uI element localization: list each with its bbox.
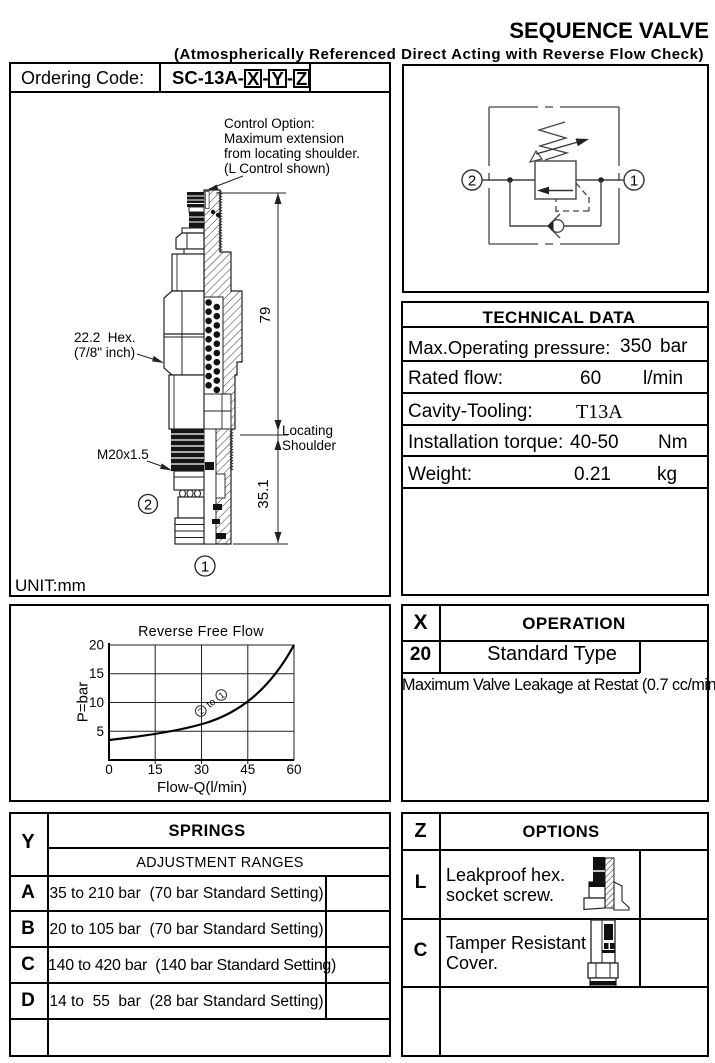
svg-text:2: 2	[144, 498, 152, 514]
svg-text:15: 15	[89, 666, 104, 681]
svg-text:Flow-Q(l/min): Flow-Q(l/min)	[157, 779, 247, 796]
svg-text:20: 20	[89, 638, 104, 653]
svg-text:0: 0	[105, 762, 113, 777]
svg-text:Reverse Free Flow: Reverse Free Flow	[138, 624, 264, 640]
svg-text:45: 45	[240, 762, 255, 777]
svg-text:60: 60	[286, 762, 301, 777]
svg-text:79: 79	[257, 307, 274, 324]
svg-text:35.1: 35.1	[255, 479, 272, 508]
svg-text:P=bar: P=bar	[75, 682, 92, 722]
svg-text:15: 15	[148, 762, 163, 777]
svg-text:1: 1	[201, 559, 209, 576]
svg-text:5: 5	[96, 724, 104, 739]
svg-text:30: 30	[194, 762, 209, 777]
svg-text:1: 1	[630, 173, 638, 190]
svg-text:2: 2	[468, 173, 476, 190]
svg-text:to: to	[205, 696, 219, 710]
